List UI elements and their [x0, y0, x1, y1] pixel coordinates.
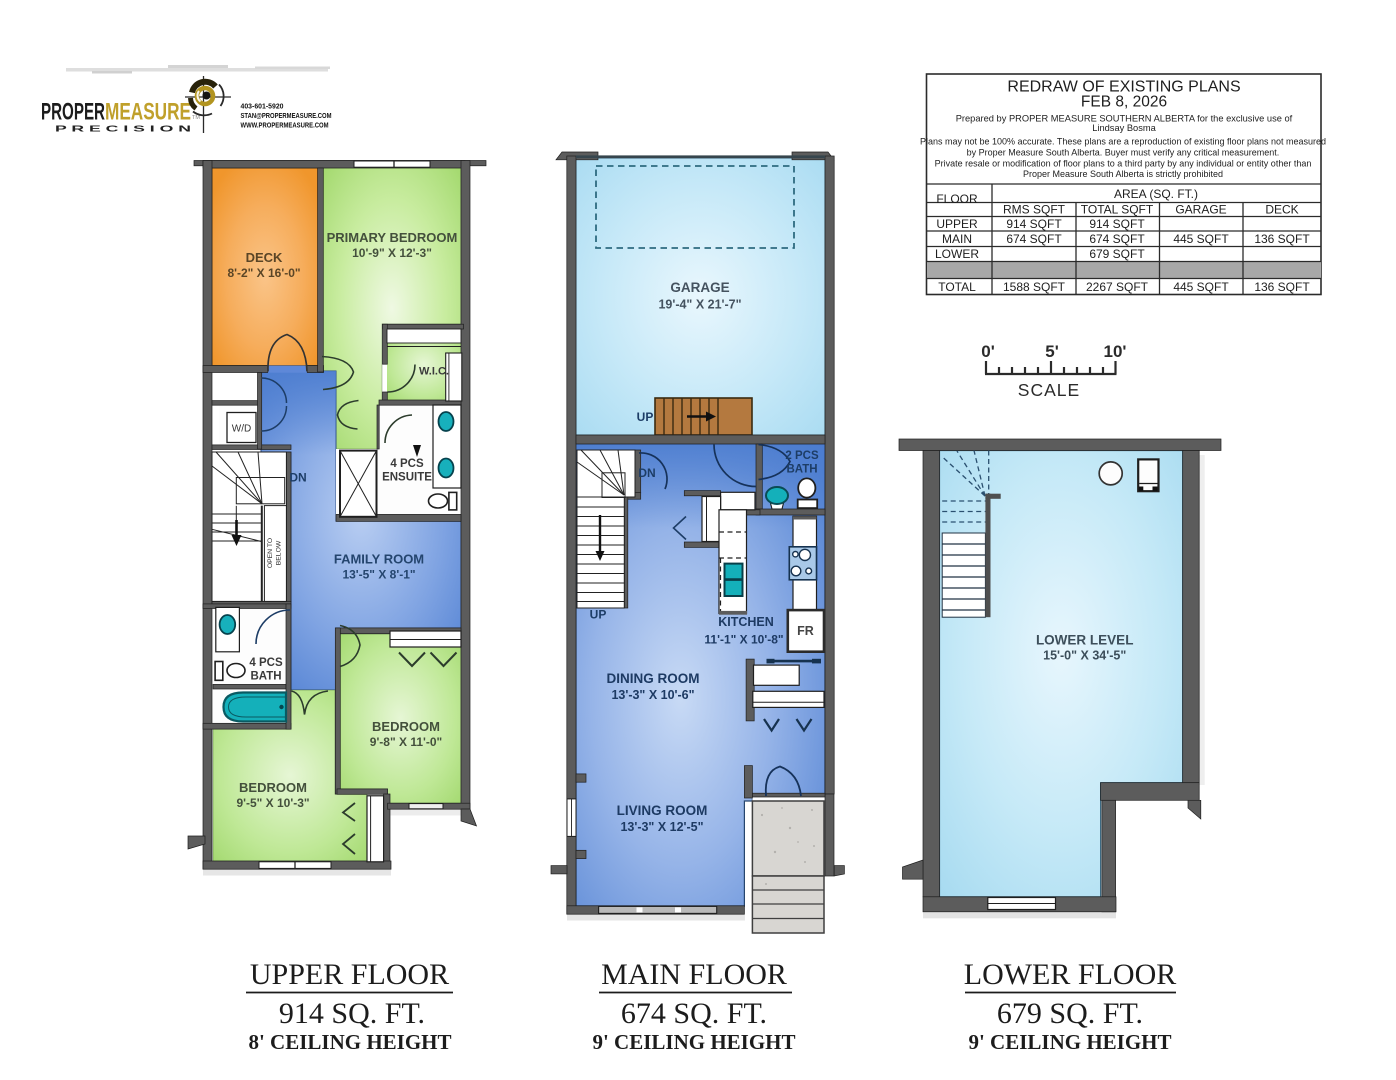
svg-text:4 PCS: 4 PCS [249, 657, 283, 669]
svg-text:9' CEILING HEIGHT: 9' CEILING HEIGHT [968, 1030, 1171, 1054]
svg-text:0': 0' [981, 342, 995, 361]
svg-text:PROPER: PROPER [41, 99, 105, 126]
svg-text:W.I.C.: W.I.C. [419, 366, 449, 378]
svg-text:AREA (SQ. FT.): AREA (SQ. FT.) [1114, 187, 1198, 201]
svg-text:KITCHEN: KITCHEN [718, 615, 774, 629]
svg-text:674 SQ. FT.: 674 SQ. FT. [621, 997, 767, 1030]
svg-text:445 SQFT: 445 SQFT [1173, 280, 1229, 294]
svg-text:LOWER LEVEL: LOWER LEVEL [1036, 633, 1134, 648]
svg-text:WWW.PROPERMEASURE.COM: WWW.PROPERMEASURE.COM [241, 121, 329, 130]
svg-text:13'-3" X 10'-6": 13'-3" X 10'-6" [611, 688, 694, 702]
svg-text:STAN@PROPERMEASURE.COM: STAN@PROPERMEASURE.COM [241, 111, 332, 120]
svg-text:914 SQ. FT.: 914 SQ. FT. [279, 997, 425, 1030]
svg-text:8'-2" X 16'-0": 8'-2" X 16'-0" [227, 266, 300, 280]
svg-text:UP: UP [590, 608, 607, 622]
svg-text:BELOW: BELOW [276, 540, 283, 565]
svg-text:2 PCS: 2 PCS [785, 450, 819, 462]
svg-text:5': 5' [1045, 342, 1059, 361]
svg-text:679 SQ. FT.: 679 SQ. FT. [997, 997, 1143, 1030]
svg-text:136 SQFT: 136 SQFT [1254, 232, 1310, 246]
svg-text:674 SQFT: 674 SQFT [1006, 232, 1062, 246]
svg-text:9'-8" X 11'-0": 9'-8" X 11'-0" [370, 735, 442, 749]
svg-text:BEDROOM: BEDROOM [372, 719, 440, 734]
svg-text:TOTAL SQFT: TOTAL SQFT [1081, 203, 1154, 217]
svg-text:2267 SQFT: 2267 SQFT [1086, 280, 1149, 294]
svg-text:MAIN: MAIN [942, 232, 972, 246]
svg-text:LOWER: LOWER [935, 247, 979, 261]
svg-text:Proper Measure South Alberta i: Proper Measure South Alberta is strictly… [1023, 169, 1223, 179]
svg-text:13'-3" X 12'-5": 13'-3" X 12'-5" [620, 820, 703, 834]
svg-text:GARAGE: GARAGE [1175, 203, 1226, 217]
svg-text:8' CEILING HEIGHT: 8' CEILING HEIGHT [248, 1030, 451, 1054]
svg-text:ENSUITE: ENSUITE [382, 472, 432, 484]
svg-text:914 SQFT: 914 SQFT [1089, 217, 1145, 231]
svg-text:OPEN TO: OPEN TO [267, 538, 274, 568]
svg-text:DECK: DECK [1265, 203, 1298, 217]
svg-text:9' CEILING HEIGHT: 9' CEILING HEIGHT [592, 1030, 795, 1054]
svg-text:MAIN FLOOR: MAIN FLOOR [601, 958, 787, 991]
svg-text:4 PCS: 4 PCS [390, 458, 424, 470]
svg-text:914 SQFT: 914 SQFT [1006, 217, 1062, 231]
svg-text:11'-1" X 10'-8": 11'-1" X 10'-8" [704, 633, 783, 647]
svg-text:PRIMARY BEDROOM: PRIMARY BEDROOM [327, 230, 458, 245]
svg-text:Lindsay Bosma: Lindsay Bosma [1092, 123, 1156, 133]
svg-text:DINING ROOM: DINING ROOM [607, 671, 700, 686]
svg-text:BATH: BATH [250, 671, 281, 683]
svg-text:Plans may not be 100% accurate: Plans may not be 100% accurate. These pl… [920, 137, 1326, 147]
svg-text:403-601-5920: 403-601-5920 [241, 102, 284, 111]
svg-text:UPPER FLOOR: UPPER FLOOR [250, 958, 449, 991]
svg-text:FEB 8, 2026: FEB 8, 2026 [1081, 94, 1167, 111]
svg-text:136 SQFT: 136 SQFT [1254, 280, 1310, 294]
svg-text:10': 10' [1104, 342, 1127, 361]
svg-text:BEDROOM: BEDROOM [239, 780, 307, 795]
svg-text:DN: DN [638, 466, 655, 480]
svg-text:19'-4" X 21'-7": 19'-4" X 21'-7" [658, 298, 741, 312]
svg-text:W/D: W/D [232, 424, 251, 435]
svg-text:DECK: DECK [246, 250, 283, 265]
svg-text:P R E C I S I O N: P R E C I S I O N [55, 124, 191, 134]
svg-text:FLOOR: FLOOR [936, 192, 978, 206]
svg-text:TOTAL: TOTAL [938, 280, 976, 294]
svg-text:UPPER: UPPER [936, 217, 978, 231]
svg-text:MEASURE: MEASURE [105, 99, 191, 126]
svg-text:679 SQFT: 679 SQFT [1089, 247, 1145, 261]
svg-text:LOWER FLOOR: LOWER FLOOR [964, 958, 1177, 991]
svg-text:RMS SQFT: RMS SQFT [1003, 203, 1066, 217]
svg-text:UP: UP [637, 410, 654, 424]
svg-text:1588 SQFT: 1588 SQFT [1003, 280, 1066, 294]
svg-text:LIVING ROOM: LIVING ROOM [617, 803, 708, 818]
svg-text:DN: DN [289, 471, 306, 485]
svg-text:674 SQFT: 674 SQFT [1089, 232, 1145, 246]
svg-text:10'-9" X 12'-3": 10'-9" X 12'-3" [352, 246, 432, 260]
svg-text:FAMILY ROOM: FAMILY ROOM [334, 552, 424, 567]
svg-text:445 SQFT: 445 SQFT [1173, 232, 1229, 246]
svg-text:Prepared by PROPER MEASURE SOU: Prepared by PROPER MEASURE SOUTHERN ALBE… [956, 114, 1293, 124]
svg-text:SCALE: SCALE [1018, 380, 1080, 400]
svg-text:15'-0" X 34'-5": 15'-0" X 34'-5" [1043, 649, 1126, 663]
svg-text:TM: TM [192, 115, 200, 121]
svg-text:GARAGE: GARAGE [670, 280, 729, 295]
svg-text:9'-5" X 10'-3": 9'-5" X 10'-3" [236, 796, 309, 810]
svg-text:FR: FR [797, 624, 814, 638]
svg-text:13'-5" X 8'-1": 13'-5" X 8'-1" [342, 568, 415, 582]
svg-text:by Proper Measure South Alber: by Proper Measure South Alberta. Buyer m… [967, 148, 1280, 158]
svg-text:Private resale or modificatio: Private resale or modification of floor … [935, 159, 1312, 169]
svg-text:BATH: BATH [786, 464, 817, 476]
